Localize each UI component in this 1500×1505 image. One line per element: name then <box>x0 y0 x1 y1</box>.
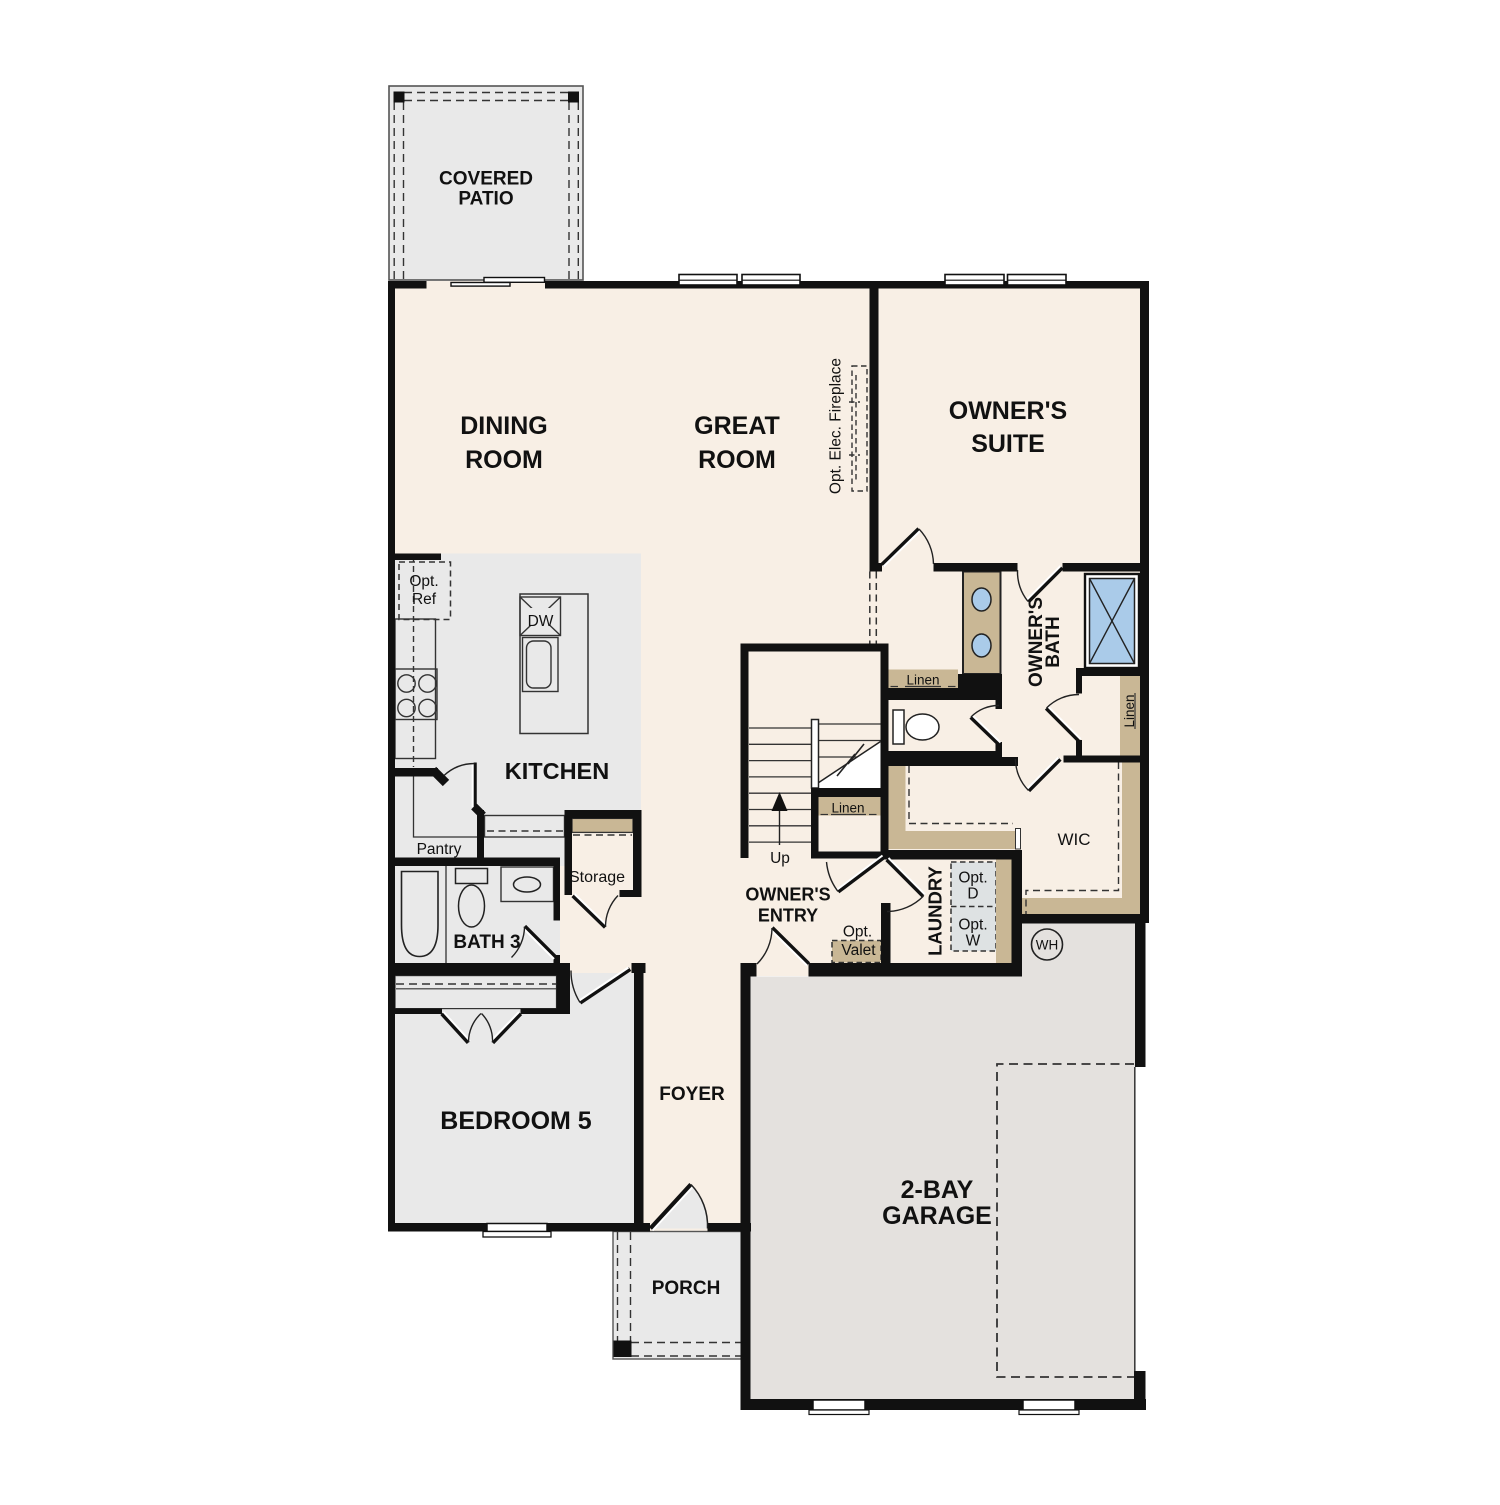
svg-text:D: D <box>967 886 978 903</box>
svg-text:Linen: Linen <box>1122 694 1137 727</box>
svg-text:OWNER'S: OWNER'S <box>949 397 1067 425</box>
svg-text:Opt.: Opt. <box>958 917 987 934</box>
svg-text:Up: Up <box>770 850 790 867</box>
svg-text:DINING: DINING <box>460 412 548 440</box>
svg-text:Ref: Ref <box>412 591 437 608</box>
svg-text:Pantry: Pantry <box>417 841 462 858</box>
svg-text:Linen: Linen <box>906 673 939 688</box>
svg-text:COVERED: COVERED <box>439 169 533 190</box>
svg-text:BEDROOM 5: BEDROOM 5 <box>440 1107 592 1135</box>
svg-text:BATH 3: BATH 3 <box>453 932 520 953</box>
svg-text:SUITE: SUITE <box>971 430 1045 458</box>
svg-text:ROOM: ROOM <box>698 446 776 474</box>
svg-text:Opt.: Opt. <box>409 573 438 590</box>
svg-text:WH: WH <box>1036 938 1059 953</box>
svg-text:DW: DW <box>528 613 554 630</box>
svg-text:KITCHEN: KITCHEN <box>505 758 609 784</box>
svg-text:ROOM: ROOM <box>465 446 543 474</box>
svg-text:Valet: Valet <box>841 942 876 959</box>
svg-text:WIC: WIC <box>1057 830 1090 849</box>
svg-text:Opt.: Opt. <box>958 870 987 887</box>
svg-text:PORCH: PORCH <box>652 1278 721 1299</box>
svg-text:ENTRY: ENTRY <box>758 906 818 926</box>
svg-text:BATH: BATH <box>1043 616 1064 667</box>
svg-text:Linen: Linen <box>831 801 864 816</box>
svg-text:Opt.: Opt. <box>843 924 872 941</box>
svg-text:GARAGE: GARAGE <box>882 1202 992 1230</box>
svg-text:Storage: Storage <box>569 869 625 886</box>
svg-text:OWNER'S: OWNER'S <box>745 885 830 905</box>
svg-text:2-BAY: 2-BAY <box>901 1176 974 1204</box>
svg-text:LAUNDRY: LAUNDRY <box>925 865 946 955</box>
svg-text:GREAT: GREAT <box>694 412 780 440</box>
svg-text:W: W <box>966 933 981 950</box>
svg-text:Opt. Elec. Fireplace: Opt. Elec. Fireplace <box>828 358 845 494</box>
svg-text:PATIO: PATIO <box>458 189 513 210</box>
svg-text:FOYER: FOYER <box>659 1084 725 1105</box>
